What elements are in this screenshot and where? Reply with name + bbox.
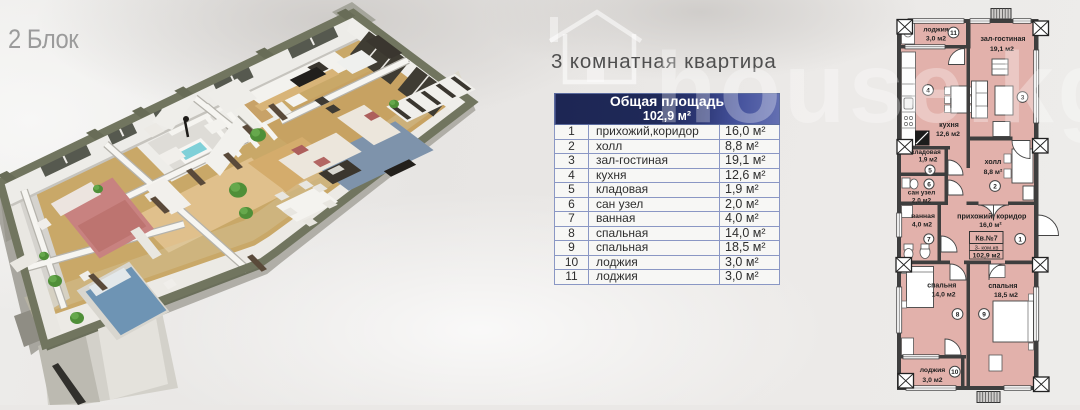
svg-text:спальня: спальня [927,283,956,290]
svg-text:лоджия: лоджия [923,27,949,34]
svg-text:зал-гостиная: зал-гостиная [981,36,1026,43]
svg-text:4,0 м2: 4,0 м2 [912,222,932,229]
svg-text:12,6 м2: 12,6 м2 [936,131,960,138]
svg-text:сан узел: сан узел [908,190,935,197]
svg-text:14,0 м2: 14,0 м2 [932,292,956,299]
svg-text:16,0 м²: 16,0 м² [979,222,1002,229]
svg-text:9: 9 [982,311,986,318]
svg-text:18,5 м2: 18,5 м2 [994,292,1018,299]
svg-text:6: 6 [927,181,931,188]
svg-text:холл: холл [985,159,1002,166]
svg-text:19,1 м2: 19,1 м2 [990,46,1014,53]
svg-text:Кв.№7: Кв.№7 [975,235,997,243]
svg-text:ванная: ванная [911,213,935,220]
svg-text:лоджия: лоджия [920,367,946,374]
svg-text:2: 2 [993,183,997,190]
svg-text:4: 4 [926,87,930,94]
svg-text:7: 7 [927,236,931,243]
svg-text:1,9 м2: 1,9 м2 [919,157,938,164]
svg-text:2,0 м2: 2,0 м2 [912,197,932,204]
svg-text:10: 10 [951,369,959,376]
svg-text:102,9 м2: 102,9 м2 [973,252,1001,259]
svg-text:11: 11 [950,30,957,37]
svg-text:1: 1 [1018,236,1022,243]
svg-text:8,8 м²: 8,8 м² [984,169,1003,176]
svg-text:3,0 м2: 3,0 м2 [926,36,946,43]
svg-text:кухня: кухня [939,122,959,129]
svg-text:5: 5 [928,167,932,174]
svg-text:8: 8 [956,311,960,318]
svg-text:спальня: спальня [988,283,1017,290]
svg-text:3: 3 [1021,94,1025,101]
svg-text:кладовая: кладовая [911,149,941,156]
svg-text:прихожий, коридор: прихожий, коридор [957,212,1027,221]
svg-text:3,0 м2: 3,0 м2 [922,377,942,384]
